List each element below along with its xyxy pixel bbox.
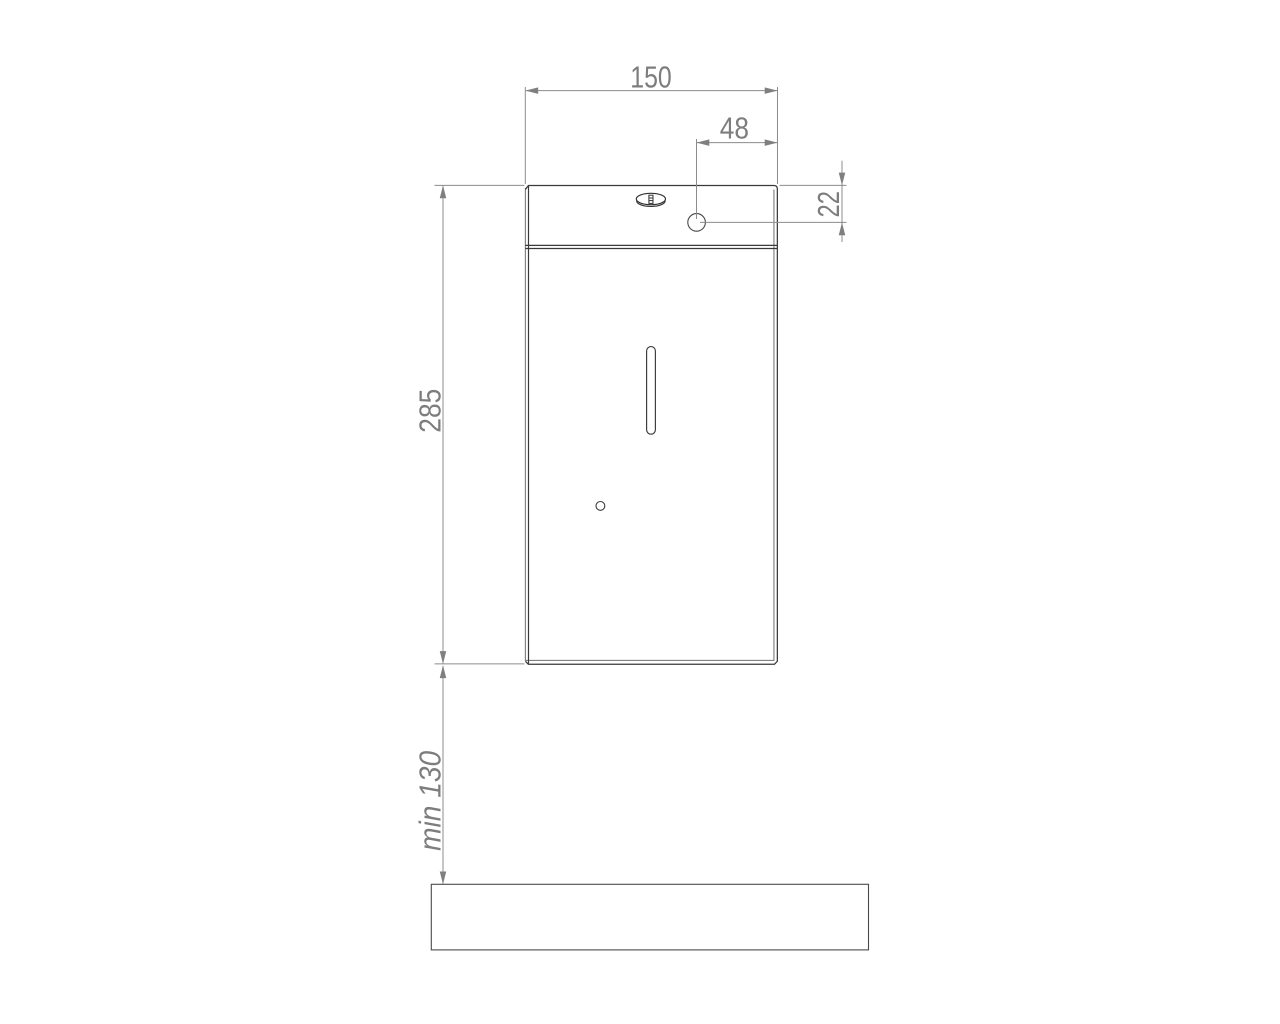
svg-text:48: 48 [720, 112, 749, 146]
svg-text:22: 22 [812, 191, 846, 218]
svg-text:285: 285 [413, 389, 447, 433]
svg-text:min 130: min 130 [414, 751, 448, 851]
svg-text:150: 150 [630, 61, 672, 95]
